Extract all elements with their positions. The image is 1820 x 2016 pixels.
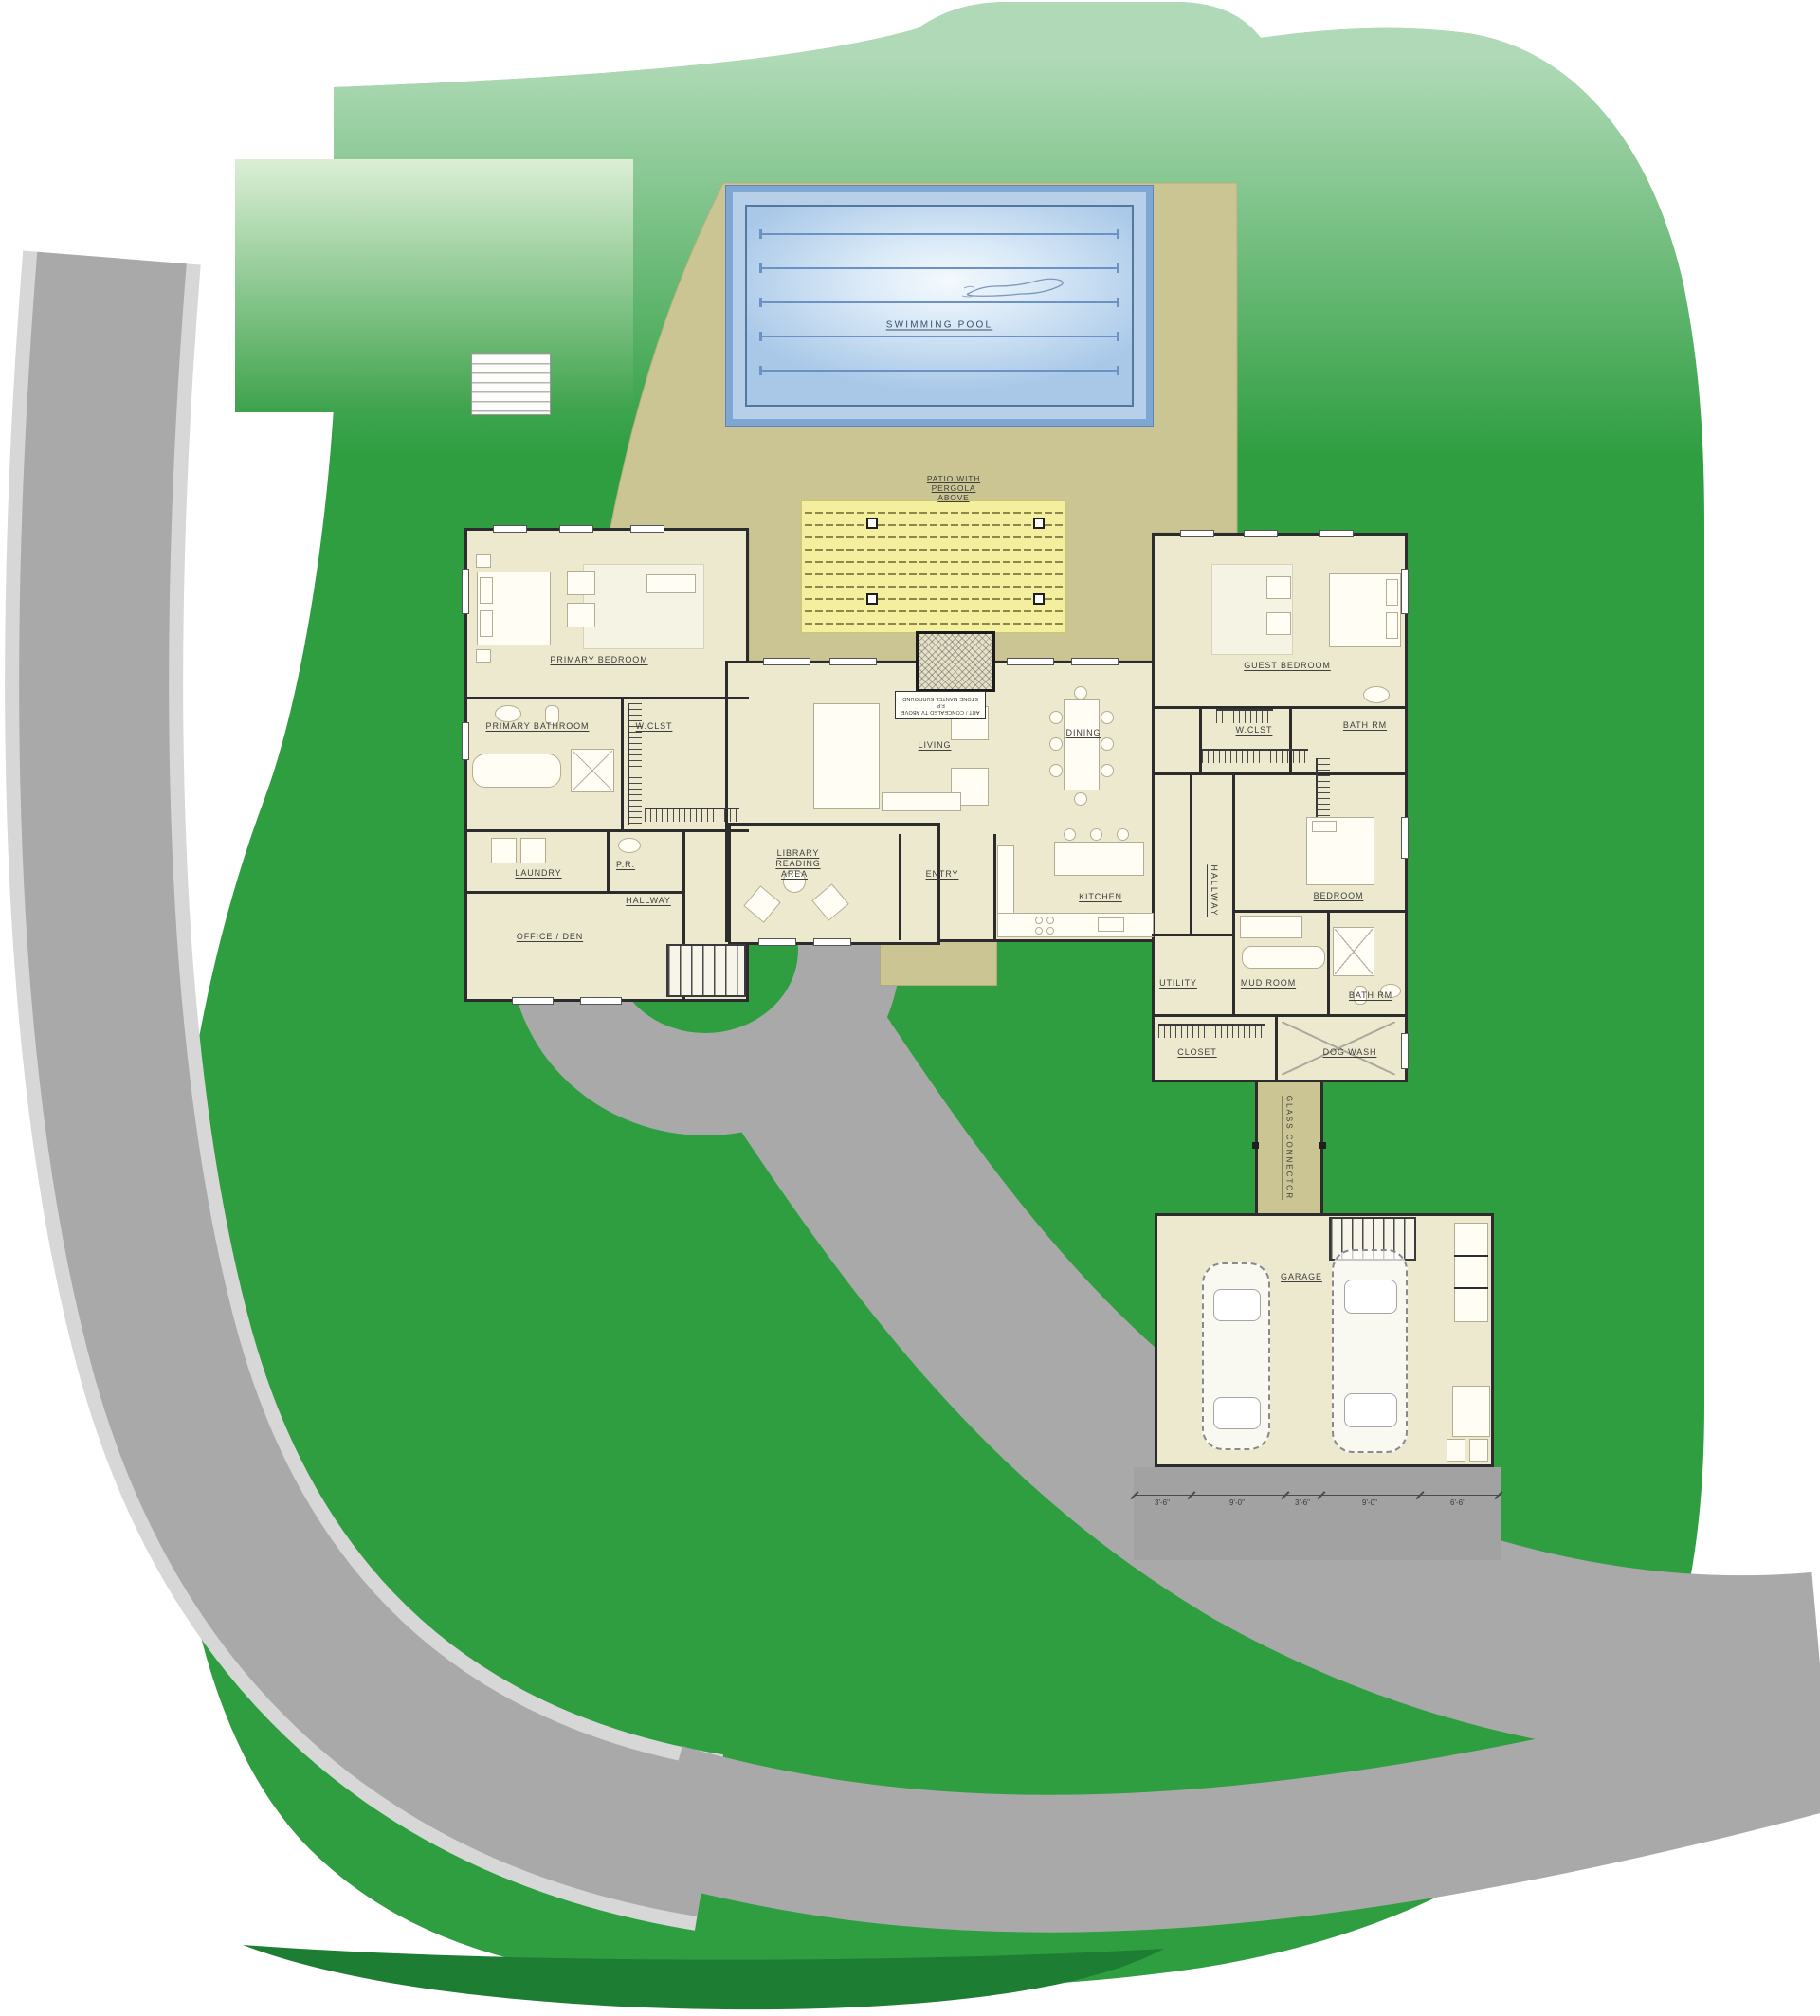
desk <box>1240 916 1302 938</box>
room-label-primary-bedroom: PRIMARY BEDROOM <box>550 655 647 664</box>
room-label-dining: DINING <box>1066 728 1101 737</box>
pool-lane-line <box>762 370 1117 372</box>
dining-chair <box>1049 737 1063 751</box>
pool-lane-line <box>762 336 1117 337</box>
dining-chair <box>1101 711 1114 724</box>
room-label-garage: GARAGE <box>1281 1272 1322 1281</box>
interior-stairs <box>666 944 746 997</box>
kitchen-island <box>1054 842 1144 876</box>
dining-chair <box>1101 764 1114 777</box>
room-label-library-3: AREA <box>781 869 808 879</box>
room-label-hallway-left: HALLWAY <box>626 896 671 905</box>
cooktop-burner <box>1035 917 1043 924</box>
console-table <box>882 792 961 811</box>
armchair <box>1266 576 1291 599</box>
library-bay <box>728 823 940 945</box>
room-label-guest-bedroom: GUEST BEDROOM <box>1244 661 1331 670</box>
terrace-steps <box>471 353 551 415</box>
dining-chair <box>1101 737 1114 751</box>
fireplace-note: ART / CONCEALED TV ABOVE F.P. STONE MANT… <box>895 691 986 719</box>
room-label-bath-rm-lower: BATH RM <box>1349 990 1392 1000</box>
floor-mat <box>1469 1439 1488 1462</box>
dim-label: 6'-6" <box>1450 1498 1465 1507</box>
bar-stool <box>1117 828 1129 841</box>
bathtub <box>472 754 561 788</box>
dining-chair <box>1074 792 1087 806</box>
patio-label: PATIO WITH PERGOLA ABOVE <box>927 474 980 502</box>
sink <box>1363 686 1390 703</box>
dim-label: 9'-0" <box>1229 1498 1245 1507</box>
room-label-laundry: LAUNDRY <box>515 868 561 878</box>
dim-label: 9'-0" <box>1362 1498 1377 1507</box>
room-label-office-den: OFFICE / DEN <box>517 932 583 941</box>
glass-connector-label: GLASS CONNECTOR <box>1285 1096 1294 1200</box>
bed-pillow <box>1386 612 1398 639</box>
room-label-bedroom: BEDROOM <box>1314 891 1364 900</box>
armchair <box>1266 612 1291 635</box>
room-label-library-1: LIBRARY <box>777 848 820 858</box>
bed-pillow <box>1386 579 1398 606</box>
dining-chair <box>1049 711 1063 724</box>
pergola-post <box>1033 593 1045 605</box>
cooktop-burner <box>1035 927 1043 935</box>
pergola-patio <box>801 500 1066 633</box>
fireplace <box>916 631 995 692</box>
bed-pillow <box>1312 821 1337 832</box>
room-label-entry: ENTRY <box>926 869 959 879</box>
bar-stool <box>1090 828 1102 841</box>
room-label-hallway-right: HALLWAY <box>1210 864 1219 917</box>
dining-chair <box>1049 764 1063 777</box>
room-label-wclst-right: W.CLST <box>1236 725 1273 735</box>
sofa <box>813 703 880 809</box>
pool-label: SWIMMING POOL <box>886 320 993 331</box>
kitchen-sink <box>1098 917 1124 932</box>
mudroom-bench <box>1242 946 1325 969</box>
room-label-closet: CLOSET <box>1177 1047 1216 1057</box>
sink <box>495 705 521 722</box>
dim-label: 3'-6" <box>1155 1498 1170 1507</box>
bed-pillow <box>480 577 493 604</box>
entry-porch <box>880 940 997 986</box>
media-cabinet <box>646 574 696 593</box>
armchair <box>567 603 595 627</box>
room-label-library-2: READING <box>775 859 820 868</box>
utility-sink <box>1452 1386 1490 1437</box>
pool-lane-line <box>762 233 1117 235</box>
floor-mat <box>1447 1439 1465 1462</box>
room-label-bath-rm-upper: BATH RM <box>1343 720 1387 730</box>
room-label-primary-bathroom: PRIMARY BATHROOM <box>486 721 590 731</box>
room-label-utility: UTILITY <box>1159 978 1197 988</box>
garage-dimension-string: 3'-6" 9'-0" 3'-6" 9'-0" 6'-6" <box>1134 1479 1501 1517</box>
washer <box>491 838 517 863</box>
storage-shelves <box>1454 1223 1488 1322</box>
bar-stool <box>1064 828 1076 841</box>
pool-coping: SWIMMING POOL <box>733 192 1146 419</box>
pergola-post <box>1033 518 1045 529</box>
pool-water: SWIMMING POOL <box>745 205 1134 407</box>
dryer <box>520 838 546 863</box>
nightstand <box>476 554 491 568</box>
armchair <box>567 571 595 595</box>
cooktop-burner <box>1046 917 1054 924</box>
cooktop-burner <box>1046 927 1054 935</box>
room-label-wclst-left: W.CLST <box>636 721 673 731</box>
dining-table <box>1064 699 1100 790</box>
room-label-kitchen: KITCHEN <box>1079 892 1122 901</box>
room-label-living: LIVING <box>919 740 952 750</box>
room-label-mud-room: MUD ROOM <box>1241 978 1296 988</box>
kitchen-counter <box>997 913 1154 937</box>
swimmer-icon <box>960 275 1074 305</box>
room-label-powder-room: P.R. <box>616 860 635 869</box>
car <box>1202 1262 1270 1450</box>
swimming-pool: SWIMMING POOL <box>725 185 1154 427</box>
car <box>1332 1249 1408 1453</box>
dim-label: 3'-6" <box>1295 1498 1310 1507</box>
powder-sink <box>618 838 641 853</box>
bed-pillow <box>480 610 493 637</box>
dining-chair <box>1074 686 1087 699</box>
pergola-post <box>866 593 878 605</box>
light-lawn-panel <box>235 159 633 412</box>
site-plan-canvas: SWIMMING POOL PATIO WITH PERGOLA ABOVE <box>0 0 1820 2016</box>
kitchen-counter <box>997 845 1014 914</box>
room-label-dog-wash: DOG WASH <box>1323 1047 1377 1057</box>
nightstand <box>476 649 491 663</box>
pool-lane-line <box>762 267 1117 269</box>
pergola-post <box>866 518 878 529</box>
